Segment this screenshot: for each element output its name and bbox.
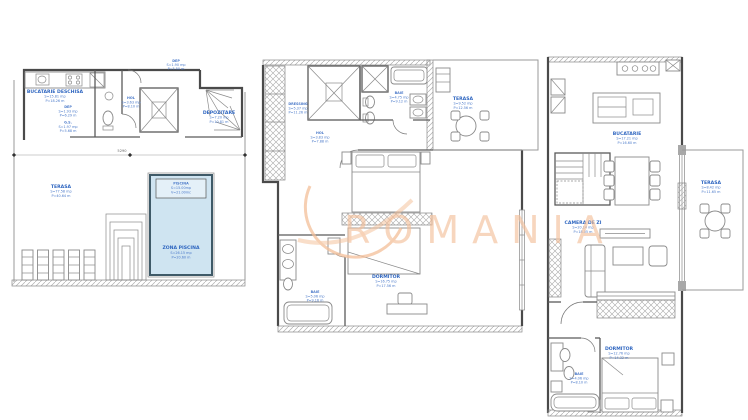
lounger-icon	[436, 68, 450, 92]
lounger-icon	[84, 250, 95, 280]
floor-plans-svg: 5290 PISCINA S=15.00mp V=21.00mc ZONA PI…	[0, 0, 748, 420]
chair-icon	[451, 111, 460, 120]
watermark: ROMANIA	[298, 186, 616, 257]
bed-icon	[602, 358, 658, 412]
chimney-block	[666, 60, 680, 71]
bathtub-icon	[391, 67, 427, 84]
table-icon	[615, 157, 649, 205]
terrace-wall-bottom	[12, 280, 245, 286]
dep-top-perimeter: P=5.50 m	[168, 67, 186, 71]
wall-bottom	[278, 326, 522, 332]
chair-icon	[721, 204, 730, 213]
armchair-icon	[649, 246, 667, 266]
hol-perimeter: P=8.10 m	[123, 105, 141, 109]
lounger-icon	[69, 250, 80, 280]
wardrobe-icon	[597, 300, 675, 318]
pool-area: S=15.00mp	[171, 186, 191, 190]
terasa-perimeter: P=11.65 m	[702, 190, 722, 194]
building-wall-right	[200, 70, 242, 137]
toilet-icon	[103, 111, 113, 125]
wall-top	[263, 60, 430, 65]
pool-zone-perimeter: P=20.60 m	[172, 256, 192, 260]
chair-icon	[650, 175, 660, 186]
nightstand-icon	[661, 400, 673, 412]
kitchen-island-icon	[593, 93, 660, 123]
terasa-perimeter: P=40.64 m	[52, 194, 72, 198]
door-arc	[122, 114, 136, 128]
sun-loungers	[22, 250, 95, 280]
nightstand-icon	[342, 152, 351, 164]
coffee-table-icon	[613, 247, 643, 265]
door-arc	[393, 120, 407, 134]
chair-icon	[650, 189, 660, 200]
bathtub-icon	[551, 394, 599, 411]
wardrobe-partition	[548, 292, 675, 324]
bath-bottom	[278, 235, 345, 326]
chair-icon	[604, 189, 614, 200]
washbasin-icon	[105, 92, 113, 100]
kitchen-second	[551, 62, 660, 123]
wardrobe-icon	[265, 66, 285, 180]
chair-icon	[451, 132, 460, 141]
baie1-perimeter: P=9.12 m	[391, 100, 409, 104]
shower-icon	[362, 66, 388, 92]
dormitor-perimeter: P=14.32 m	[610, 356, 630, 360]
terrace-first	[433, 60, 538, 150]
baie-perimeter: P=8.10 m	[571, 381, 589, 385]
pool-label: PISCINA	[173, 182, 189, 186]
floor-plans-image: 5290 PISCINA S=15.00mp V=21.00mc ZONA PI…	[0, 0, 748, 420]
door-arc	[561, 302, 583, 324]
entry-door-arc	[128, 70, 141, 83]
stairwell-icon	[140, 88, 178, 132]
stairs-icon	[308, 66, 360, 120]
washer-icon	[551, 381, 562, 392]
door-arc	[581, 338, 595, 352]
chair-icon	[480, 132, 489, 141]
depozitare-hatch	[206, 90, 240, 130]
pool-zone-area: S=26.15 mp	[170, 251, 191, 255]
terrace-steps	[106, 214, 146, 280]
watermark-text: ROMANIA	[344, 208, 616, 252]
hol-perimeter: P=7.88 m	[312, 140, 330, 144]
pool-volume: V=21.00mc	[171, 191, 191, 195]
gs-perimeter: P=5.68 m	[60, 129, 78, 133]
pool: PISCINA S=15.00mp V=21.00mc ZONA PISCINA…	[148, 173, 214, 277]
chair-icon	[604, 161, 614, 172]
kitchen-counter	[25, 72, 105, 88]
dining-table	[604, 157, 660, 205]
chair-icon	[700, 229, 709, 238]
dep-perimeter: P=6.29 m	[60, 114, 78, 118]
lounger-icon	[22, 250, 33, 280]
dimension-line: 5290	[12, 149, 247, 157]
kitchen-perimeter: P=18.26 m	[46, 99, 66, 103]
desk-icon	[387, 304, 427, 314]
dressing-perimeter: P=11.26 m	[289, 111, 309, 115]
bucatarie-perimeter: P=16.60 m	[618, 141, 638, 145]
chair-icon	[480, 111, 489, 120]
lounger-icon	[53, 250, 64, 280]
chair-icon	[604, 175, 614, 186]
chair-icon	[700, 204, 709, 213]
depozitare-perimeter: P=10.81 m	[210, 120, 230, 124]
dimension-value: 5290	[117, 149, 127, 153]
terrace-second	[682, 150, 743, 290]
toilet-icon	[284, 278, 293, 290]
chair-icon	[721, 229, 730, 238]
lounger-icon	[38, 250, 49, 280]
terasa-perimeter: P=12.56 m	[454, 106, 474, 110]
stairs-icon	[555, 153, 610, 205]
toilet-icon	[560, 349, 570, 362]
cabinet-icon	[662, 353, 674, 365]
floor-plan-first: DRESSING S=5.37 mp P=11.26 m HOL S=3.83 …	[263, 60, 538, 332]
glass-wall	[678, 145, 686, 291]
wall-bath-terrace	[427, 60, 433, 150]
dormitor-perimeter: P=17.56 m	[377, 284, 397, 288]
round-table-icon	[705, 211, 725, 231]
wall-top	[548, 57, 682, 62]
chair-icon	[650, 161, 660, 172]
vanity-icon	[280, 240, 296, 280]
floor-plan-ground: 5290 PISCINA S=15.00mp V=21.00mc ZONA PI…	[12, 59, 247, 286]
chair-icon	[398, 293, 412, 304]
baie2-perimeter: P=9.16 m	[307, 299, 325, 303]
nightstand-icon	[421, 152, 430, 164]
